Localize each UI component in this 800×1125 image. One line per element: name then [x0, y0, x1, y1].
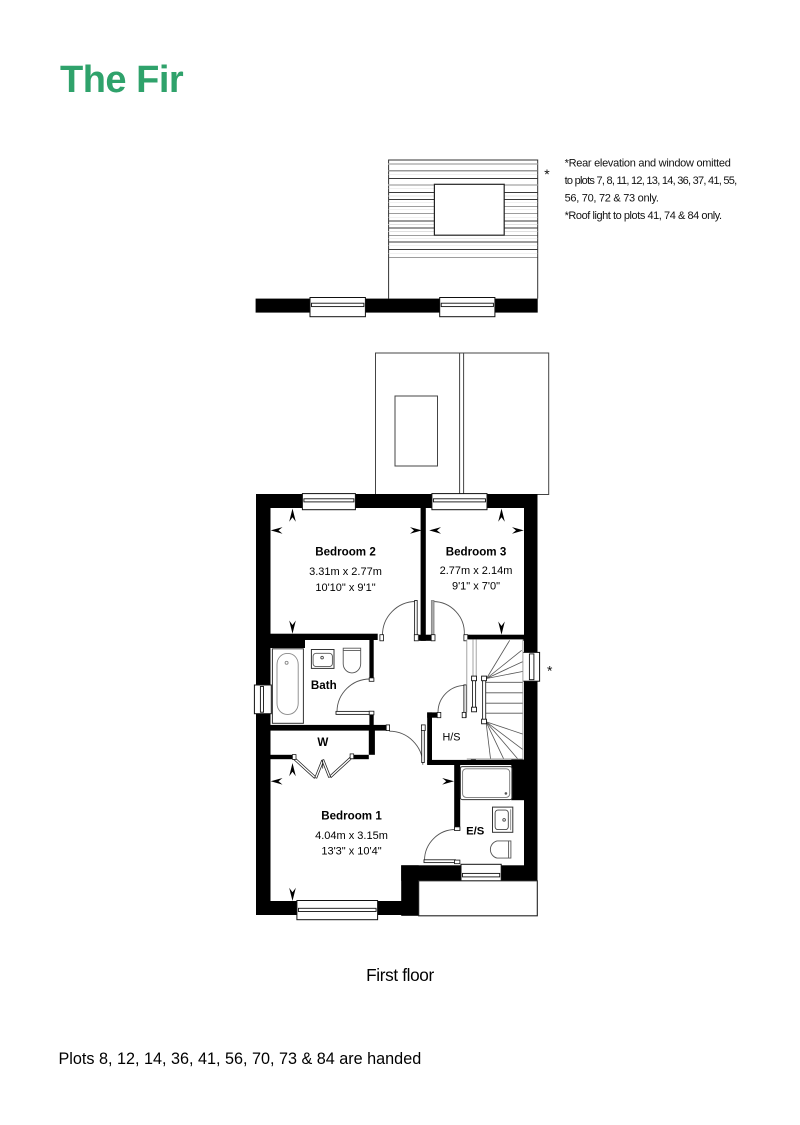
svg-text:3.31m x 2.77m: 3.31m x 2.77m [309, 566, 382, 578]
svg-text:*: * [547, 662, 553, 678]
svg-text:9'1" x 7'0": 9'1" x 7'0" [452, 581, 500, 593]
svg-text:First floor: First floor [366, 965, 434, 985]
svg-text:Bedroom 3: Bedroom 3 [446, 546, 507, 559]
svg-text:The Fir: The Fir [60, 59, 184, 101]
svg-text:Bedroom 1: Bedroom 1 [321, 810, 382, 823]
svg-text:*Rear elevation and window omi: *Rear elevation and window omitted [565, 158, 731, 170]
svg-text:4.04m x 3.15m: 4.04m x 3.15m [315, 830, 388, 842]
svg-text:13'3" x 10'4": 13'3" x 10'4" [321, 846, 381, 858]
svg-text:Bath: Bath [311, 679, 337, 692]
svg-text:2.77m x 2.14m: 2.77m x 2.14m [440, 565, 513, 577]
svg-text:Plots 8, 12, 14, 36, 41, 56, 7: Plots 8, 12, 14, 36, 41, 56, 70, 73 & 84… [59, 1050, 422, 1068]
svg-text:H/S: H/S [443, 731, 461, 743]
svg-text:10'10" x 9'1": 10'10" x 9'1" [315, 582, 375, 594]
svg-text:*Roof light to plots 41, 74 &: *Roof light to plots 41, 74 & 84 only. [565, 210, 722, 222]
svg-text:E/S: E/S [466, 826, 485, 838]
svg-text:W: W [317, 736, 328, 749]
svg-text:*: * [544, 166, 550, 182]
svg-text:56, 70, 72 & 73 only.: 56, 70, 72 & 73 only. [565, 193, 659, 205]
svg-text:Bedroom 2: Bedroom 2 [315, 546, 376, 559]
svg-text:to plots 7, 8, 11, 12, 13, 14,: to plots 7, 8, 11, 12, 13, 14, 36, 37, 4… [565, 175, 738, 187]
